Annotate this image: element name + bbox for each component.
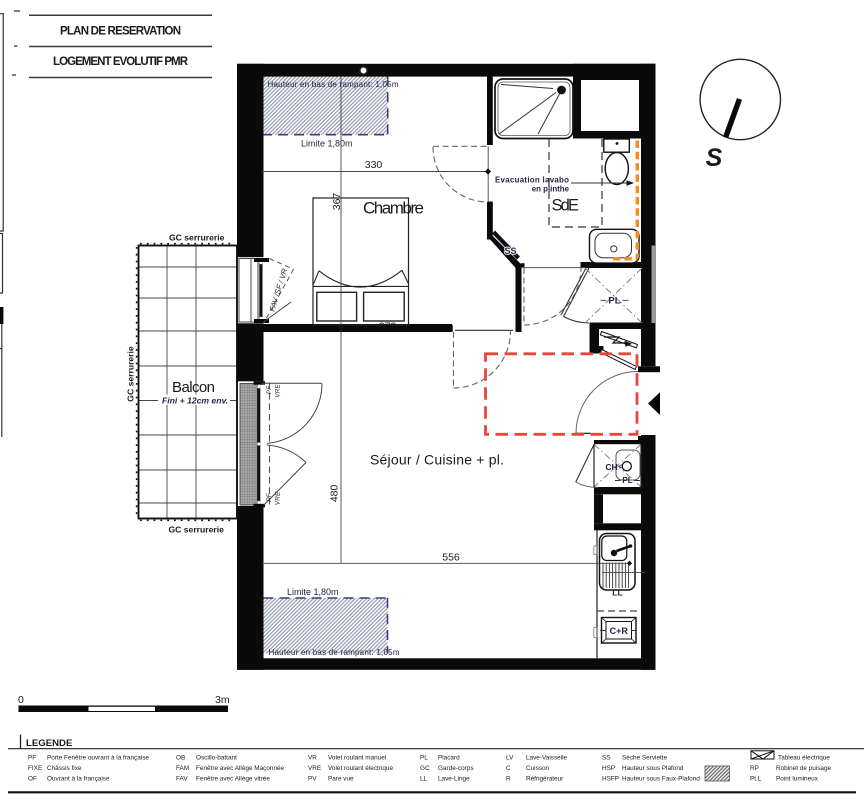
- svg-text:3m: 3m: [215, 694, 230, 706]
- svg-text:PL: PL: [608, 295, 620, 306]
- svg-text:Hauteur sous Plafond: Hauteur sous Plafond: [622, 765, 684, 772]
- svg-text:Oscillo-battant: Oscillo-battant: [196, 755, 237, 762]
- svg-text:Hauteur en bas de rampant: 1,0: Hauteur en bas de rampant: 1,05m: [269, 648, 400, 657]
- svg-text:Tableau électrique: Tableau électrique: [778, 755, 830, 762]
- svg-text:Point lumineux: Point lumineux: [776, 776, 819, 783]
- svg-text:OB: OB: [176, 755, 185, 762]
- svg-text:Pare vue: Pare vue: [328, 776, 354, 783]
- svg-text:LL: LL: [420, 776, 428, 783]
- svg-text:GC: GC: [420, 765, 430, 772]
- svg-text:Limite 1,80m: Limite 1,80m: [287, 587, 339, 597]
- svg-text:FIXE: FIXE: [28, 765, 42, 772]
- svg-text:PF: PF: [266, 385, 273, 394]
- svg-text:Lave-Linge: Lave-Linge: [438, 776, 470, 783]
- svg-text:Balcon: Balcon: [172, 379, 215, 396]
- svg-text:Cuisson: Cuisson: [526, 765, 550, 772]
- svg-text:PL: PL: [622, 476, 632, 485]
- svg-text:Séjour / Cuisine + pl.: Séjour / Cuisine + pl.: [370, 452, 504, 468]
- svg-text:Chambre: Chambre: [363, 198, 424, 217]
- svg-text:HSP: HSP: [602, 765, 615, 772]
- svg-text:Fenêtre avec Allège vitrée: Fenêtre avec Allège vitrée: [196, 776, 270, 783]
- svg-text:Robinet de puisage: Robinet de puisage: [776, 765, 832, 772]
- svg-text:C: C: [506, 765, 511, 772]
- svg-text:PF: PF: [28, 755, 36, 762]
- svg-text:S: S: [706, 144, 723, 172]
- svg-text:PLAN DE RESERVATION: PLAN DE RESERVATION: [60, 26, 181, 38]
- svg-text:en plinthe: en plinthe: [532, 185, 570, 194]
- svg-text:367: 367: [331, 193, 343, 211]
- svg-text:Pt.L: Pt.L: [750, 776, 762, 783]
- svg-text:GC serrurerie: GC serrurerie: [169, 525, 225, 535]
- svg-text:GC serrurerie: GC serrurerie: [169, 233, 225, 243]
- svg-text:556: 556: [442, 552, 460, 564]
- svg-text:LL: LL: [612, 588, 623, 598]
- svg-text:OF: OF: [28, 776, 37, 783]
- svg-text:LEGENDE: LEGENDE: [26, 738, 73, 749]
- svg-text:Fenêtre avec Allège Maçonnée: Fenêtre avec Allège Maçonnée: [196, 765, 285, 772]
- svg-text:PL: PL: [420, 755, 428, 762]
- svg-text:SS: SS: [602, 755, 611, 762]
- svg-text:HSFP: HSFP: [602, 776, 619, 783]
- svg-text:FAM: FAM: [176, 765, 189, 772]
- svg-text:330: 330: [365, 159, 383, 171]
- svg-text:Hauteur en bas de rampant: 1,0: Hauteur en bas de rampant: 1,05m: [268, 80, 399, 89]
- svg-text:Lave-Vaisselle: Lave-Vaisselle: [526, 755, 568, 762]
- svg-text:Hauteur sous Faux-Plafond: Hauteur sous Faux-Plafond: [622, 776, 700, 783]
- svg-text:Evacuation lavabo: Evacuation lavabo: [495, 176, 569, 185]
- svg-text:SS: SS: [505, 246, 517, 256]
- svg-text:Volet roulant manuel: Volet roulant manuel: [328, 755, 386, 762]
- svg-text:PV: PV: [308, 776, 317, 783]
- svg-text:VR: VR: [308, 755, 317, 762]
- svg-text:Sèche Serviette: Sèche Serviette: [622, 755, 668, 762]
- svg-text:Placard: Placard: [438, 755, 460, 762]
- svg-text:FAV: FAV: [176, 776, 188, 783]
- svg-text:Fini + 12cm env.: Fini + 12cm env.: [162, 396, 228, 406]
- svg-text:Volet roulant électrique: Volet roulant électrique: [328, 765, 393, 772]
- svg-text:CH: CH: [605, 462, 617, 472]
- svg-text:Porte Fenêtre ouvrant à la fra: Porte Fenêtre ouvrant à la française: [47, 755, 149, 762]
- svg-text:LV: LV: [506, 755, 514, 762]
- svg-text:VRE: VRE: [275, 384, 282, 398]
- svg-text:C+R: C+R: [610, 626, 629, 636]
- svg-text:Ouvrant à la française: Ouvrant à la française: [47, 776, 110, 783]
- svg-text:GC serrurerie: GC serrurerie: [125, 346, 135, 402]
- svg-text:Réfrigérateur: Réfrigérateur: [526, 776, 564, 783]
- svg-text:Châssis fixe: Châssis fixe: [47, 765, 82, 772]
- svg-text:LOGEMENT EVOLUTIF PMR: LOGEMENT EVOLUTIF PMR: [53, 56, 189, 68]
- svg-text:SdE: SdE: [552, 197, 580, 215]
- svg-text:Limite 1,80m: Limite 1,80m: [301, 139, 353, 149]
- svg-text:VRE: VRE: [275, 491, 282, 505]
- svg-text:R: R: [506, 776, 511, 783]
- svg-text:RP: RP: [750, 765, 759, 772]
- svg-text:PF: PF: [266, 492, 273, 501]
- svg-text:Garde-corps: Garde-corps: [438, 765, 474, 772]
- svg-text:VRE: VRE: [308, 765, 321, 772]
- svg-text:0: 0: [18, 694, 24, 706]
- svg-text:480: 480: [329, 484, 341, 502]
